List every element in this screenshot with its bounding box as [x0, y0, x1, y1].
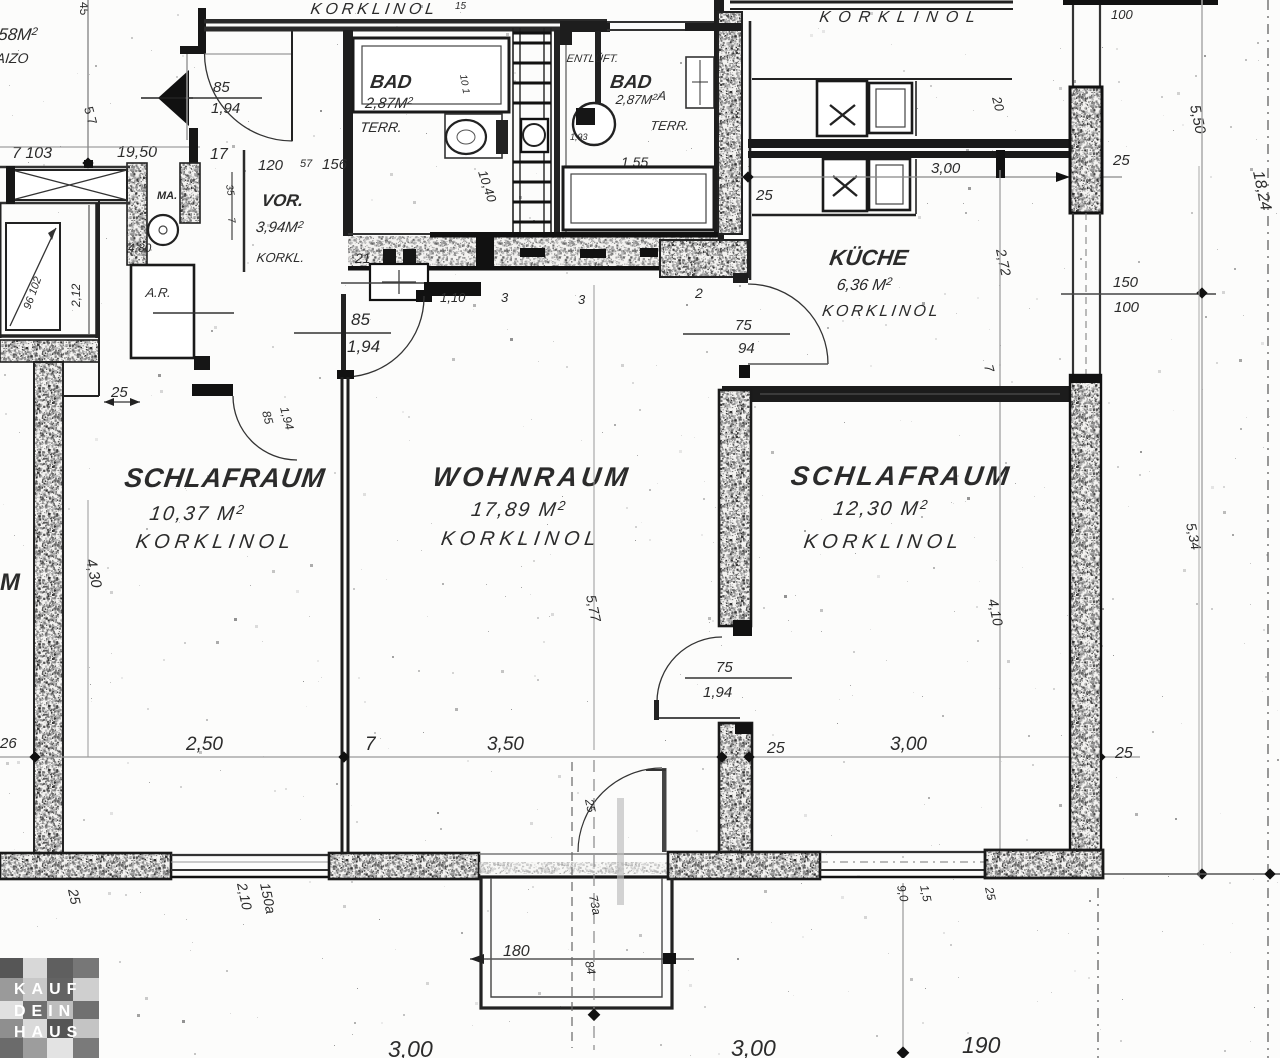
- svg-text:1,94: 1,94: [347, 337, 380, 356]
- svg-text:3,00: 3,00: [931, 160, 961, 177]
- svg-text:94: 94: [738, 340, 755, 357]
- svg-text:KORKLINOL: KORKLINOL: [440, 528, 602, 550]
- svg-text:150: 150: [1113, 274, 1139, 291]
- svg-text:2: 2: [694, 285, 703, 301]
- svg-text:KORKLINOL: KORKLINOL: [818, 8, 984, 26]
- svg-text:25: 25: [65, 886, 84, 906]
- svg-text:100: 100: [1111, 7, 1133, 22]
- svg-text:10,37 M2: 10,37 M2: [148, 502, 247, 525]
- svg-text:6,36 M2: 6,36 M2: [836, 276, 894, 294]
- svg-text:KORKLINOL: KORKLINOL: [821, 302, 942, 320]
- svg-text:17: 17: [210, 146, 229, 163]
- svg-text:3,00: 3,00: [890, 734, 927, 755]
- svg-text:SCHLAFRAUM: SCHLAFRAUM: [123, 462, 328, 493]
- svg-text:1,94: 1,94: [703, 684, 732, 701]
- svg-text:7 103: 7 103: [12, 145, 52, 162]
- svg-text:120: 120: [258, 157, 284, 174]
- svg-text:15: 15: [455, 1, 467, 12]
- svg-text:VOR.: VOR.: [260, 191, 304, 210]
- svg-text:180: 180: [503, 943, 530, 960]
- svg-text:26: 26: [0, 735, 17, 752]
- svg-text:ENTLÜFT.: ENTLÜFT.: [566, 53, 619, 65]
- svg-text:3,00: 3,00: [388, 1036, 433, 1058]
- svg-text:MA.: MA.: [157, 190, 177, 202]
- svg-text:3,00: 3,00: [731, 1035, 776, 1058]
- svg-text:25: 25: [110, 384, 128, 401]
- svg-text:TERR.: TERR.: [649, 118, 690, 133]
- svg-text:1,93: 1,93: [570, 132, 588, 142]
- svg-text:45: 45: [77, 2, 91, 16]
- svg-text:2,12: 2,12: [69, 283, 83, 308]
- svg-text:SCHLAFRAUM: SCHLAFRAUM: [789, 460, 1014, 491]
- svg-text:BAD: BAD: [609, 72, 653, 93]
- svg-text:4,80: 4,80: [128, 241, 152, 255]
- svg-text:25: 25: [755, 187, 773, 204]
- svg-text:BAD: BAD: [369, 72, 413, 93]
- svg-text:7: 7: [365, 734, 377, 755]
- svg-text:25: 25: [766, 740, 785, 757]
- svg-text:3: 3: [578, 292, 586, 307]
- svg-text:85: 85: [351, 310, 370, 329]
- svg-text:KÜCHE: KÜCHE: [828, 245, 911, 270]
- svg-text:KORKLINOL: KORKLINOL: [802, 531, 964, 553]
- svg-text:1,10: 1,10: [440, 290, 466, 305]
- svg-text:A.R.: A.R.: [144, 285, 172, 300]
- svg-text:1,94: 1,94: [211, 100, 240, 117]
- svg-text:KAUF: KAUF: [14, 981, 82, 998]
- svg-text:3,50: 3,50: [487, 734, 524, 755]
- svg-text:KORKLINOL: KORKLINOL: [309, 0, 439, 18]
- svg-text:M: M: [0, 569, 21, 596]
- svg-text:WOHNRAUM: WOHNRAUM: [431, 461, 634, 492]
- svg-text:100: 100: [1114, 299, 1140, 316]
- svg-text:TERR.: TERR.: [359, 119, 403, 135]
- svg-text:KORKL.: KORKL.: [256, 250, 306, 265]
- svg-text:57: 57: [300, 158, 313, 170]
- svg-text:DEIN: DEIN: [14, 1003, 76, 1020]
- svg-text:12,30 M2: 12,30 M2: [832, 497, 931, 520]
- svg-text:25: 25: [1112, 152, 1130, 169]
- svg-text:75: 75: [716, 659, 733, 676]
- svg-text:21: 21: [354, 250, 371, 266]
- svg-text:75: 75: [735, 317, 752, 334]
- svg-text:190: 190: [962, 1032, 1001, 1058]
- svg-text:17,89 M2: 17,89 M2: [470, 498, 569, 521]
- svg-text:2,50: 2,50: [185, 734, 223, 755]
- svg-text:25: 25: [1114, 745, 1133, 762]
- svg-text:AIZO: AIZO: [0, 50, 29, 66]
- svg-text:KORKLINOL: KORKLINOL: [134, 531, 296, 553]
- svg-text:HAUS: HAUS: [14, 1024, 83, 1041]
- svg-text:85: 85: [213, 79, 230, 96]
- svg-text:3: 3: [501, 290, 509, 305]
- svg-text:156: 156: [322, 156, 348, 173]
